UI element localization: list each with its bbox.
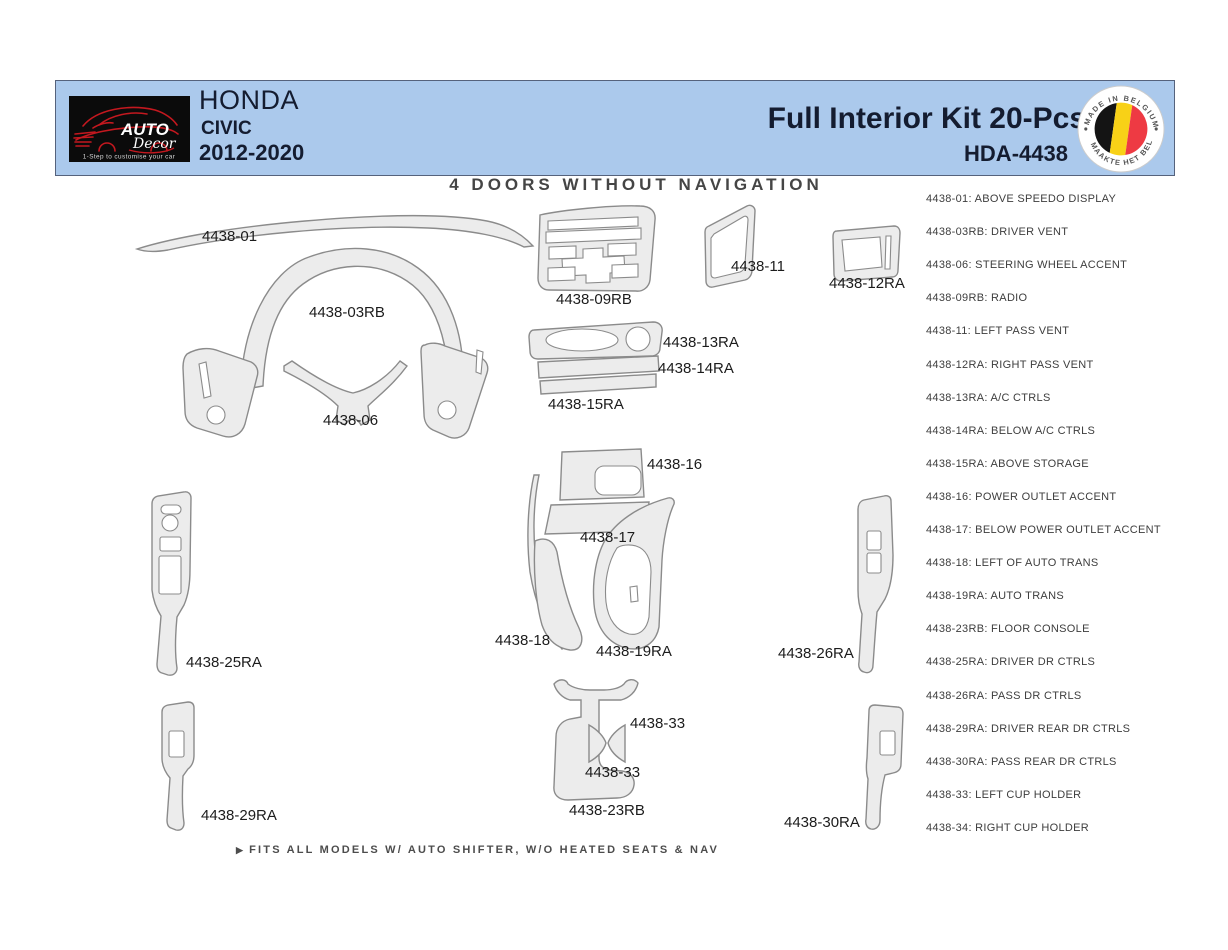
footnote-triangle-icon: ▶ [236, 845, 245, 855]
legend-item: 4438-03RB: DRIVER VENT [926, 226, 1068, 238]
legend-item: 4438-17: BELOW POWER OUTLET ACCENT [926, 524, 1161, 536]
footnote-text: FITS ALL MODELS W/ AUTO SHIFTER, W/O HEA… [249, 844, 719, 856]
legend-item: 4438-25RA: DRIVER DR CTRLS [926, 656, 1095, 668]
legend-list: 4438-01: ABOVE SPEEDO DISPLAY4438-03RB: … [0, 0, 1228, 950]
legend-item: 4438-26RA: PASS DR CTRLS [926, 690, 1082, 702]
legend-item: 4438-12RA: RIGHT PASS VENT [926, 359, 1094, 371]
legend-item: 4438-16: POWER OUTLET ACCENT [926, 491, 1116, 503]
legend-item: 4438-19RA: AUTO TRANS [926, 590, 1064, 602]
legend-item: 4438-06: STEERING WHEEL ACCENT [926, 259, 1127, 271]
legend-item: 4438-15RA: ABOVE STORAGE [926, 458, 1089, 470]
legend-item: 4438-23RB: FLOOR CONSOLE [926, 623, 1090, 635]
legend-item: 4438-14RA: BELOW A/C CTRLS [926, 425, 1095, 437]
legend-item: 4438-29RA: DRIVER REAR DR CTRLS [926, 723, 1130, 735]
product-sheet: AUTO Decor 1-Step to customise your car … [0, 0, 1228, 950]
legend-item: 4438-09RB: RADIO [926, 292, 1027, 304]
legend-item: 4438-13RA: A/C CTRLS [926, 392, 1051, 404]
legend-item: 4438-30RA: PASS REAR DR CTRLS [926, 756, 1117, 768]
legend-item: 4438-11: LEFT PASS VENT [926, 325, 1069, 337]
legend-item: 4438-18: LEFT OF AUTO TRANS [926, 557, 1099, 569]
legend-item: 4438-34: RIGHT CUP HOLDER [926, 822, 1089, 834]
legend-item: 4438-33: LEFT CUP HOLDER [926, 789, 1081, 801]
legend-item: 4438-01: ABOVE SPEEDO DISPLAY [926, 193, 1116, 205]
footnote: ▶FITS ALL MODELS W/ AUTO SHIFTER, W/O HE… [236, 844, 719, 856]
